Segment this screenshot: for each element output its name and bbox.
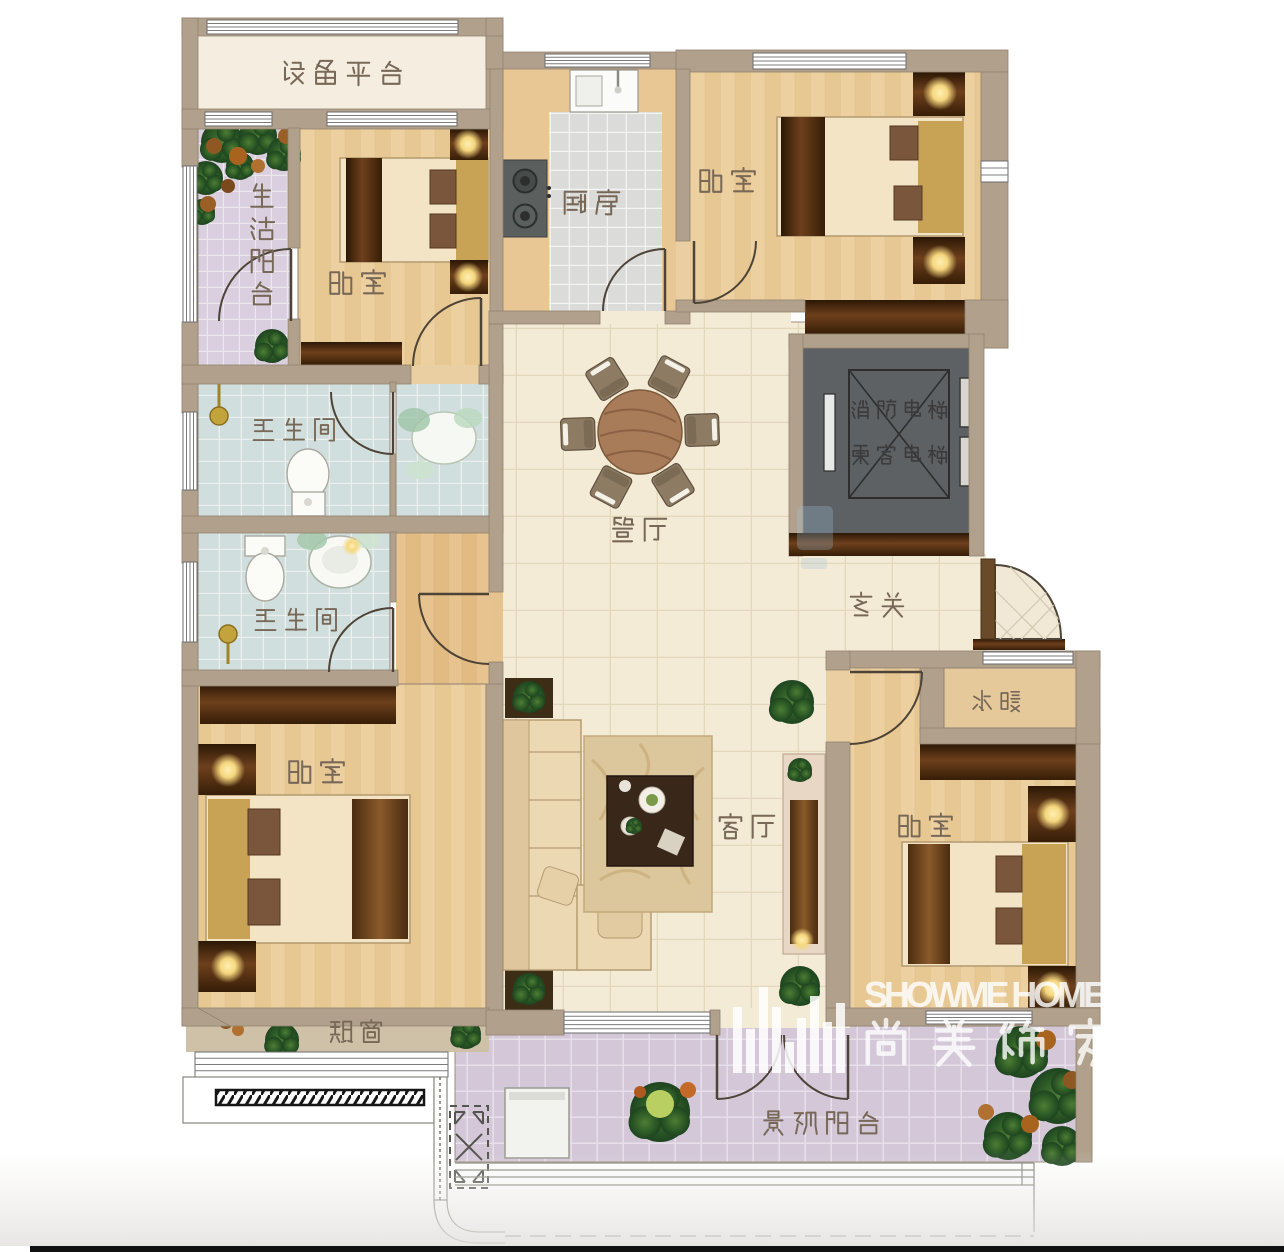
svg-text:SHOWME HOME: SHOWME HOME (864, 974, 1109, 1015)
